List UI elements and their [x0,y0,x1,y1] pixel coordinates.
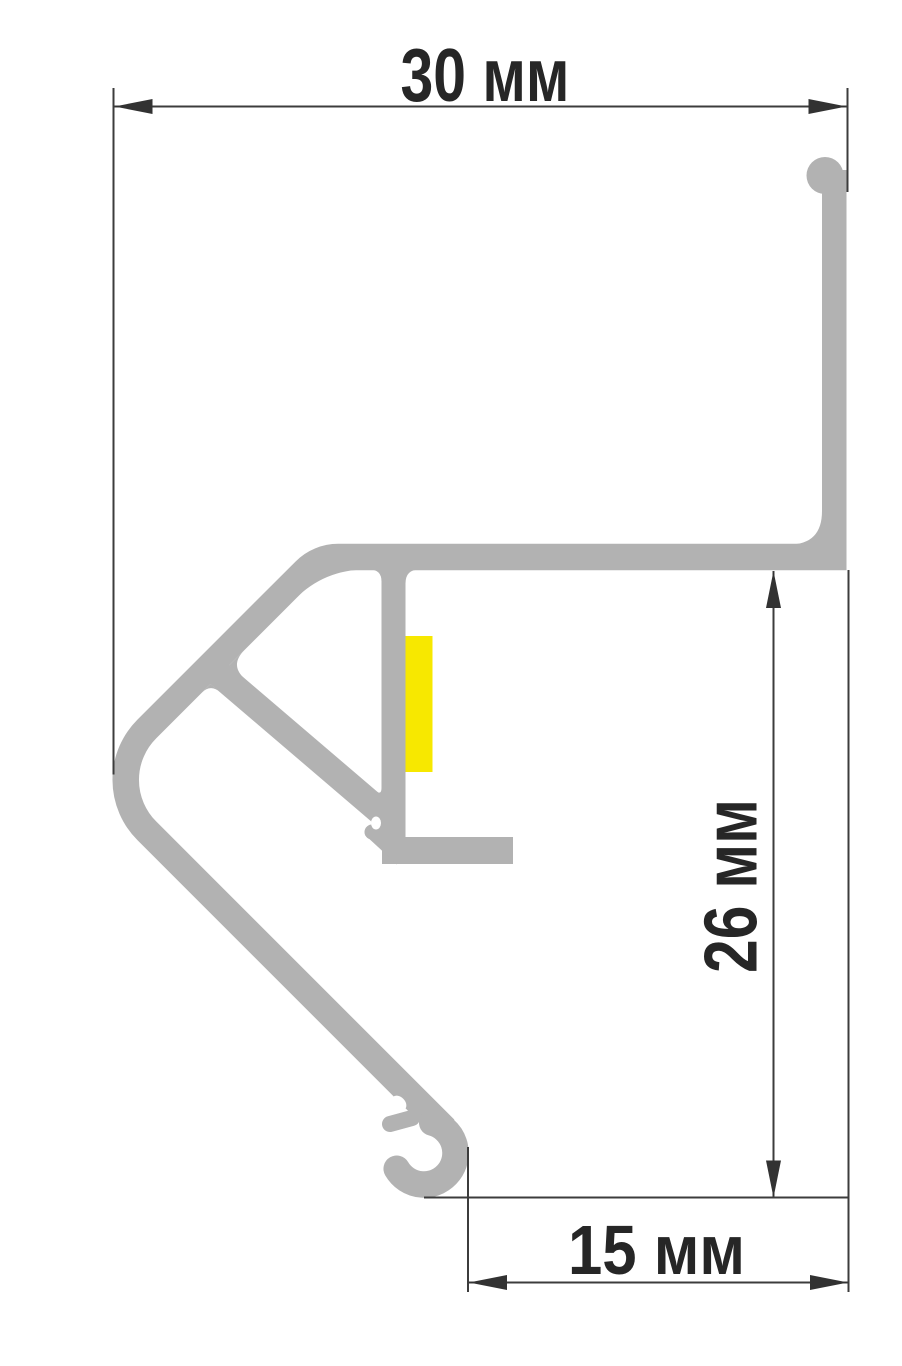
svg-text:30 мм: 30 мм [401,33,570,117]
svg-text:15 мм: 15 мм [568,1211,745,1289]
svg-text:26 мм: 26 мм [689,799,773,973]
